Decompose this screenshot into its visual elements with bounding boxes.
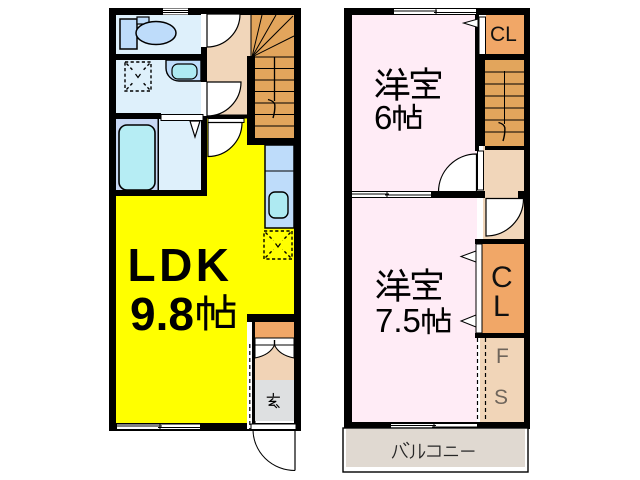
svg-text:F: F [496,345,509,368]
svg-text:6: 6 [374,99,392,136]
svg-text:S: S [494,386,508,409]
svg-text:LDK: LDK [127,239,232,291]
svg-text:9.8: 9.8 [130,288,194,340]
svg-text:7.5: 7.5 [375,302,421,339]
svg-text:L: L [493,290,510,323]
svg-text:CL: CL [490,23,517,46]
